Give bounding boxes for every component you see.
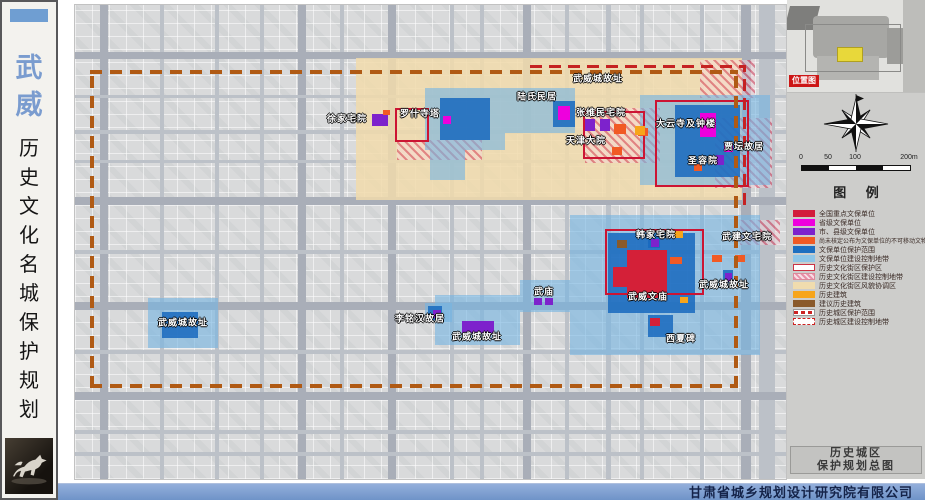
- map-label: 武威文庙: [628, 290, 668, 303]
- legend-swatch-dashfill-red: [793, 309, 815, 316]
- planning-map: 武威城故址徐家宅院罗什寺塔陆氏民居张维民宅院天津大院大云寺及钟楼贾坛故居圣容院韩…: [75, 5, 786, 479]
- road: [75, 452, 786, 456]
- boundary-edge: [90, 70, 738, 74]
- map-label: 张维民宅院: [576, 106, 626, 119]
- inset-patch: [903, 0, 925, 92]
- legend: 图 例 全国重点文保单位省级文保单位市、县级文保单位尚未核定公布为文保单位的不可…: [787, 182, 925, 326]
- map-label: 大云寺及钟楼: [656, 117, 716, 130]
- map-label: 西夏碑: [666, 332, 696, 345]
- inset-highlight-rect: [837, 47, 863, 62]
- legend-swatch-purple: [793, 228, 815, 235]
- sheet-title-line1: 历史城区: [791, 447, 921, 460]
- city-name-vertical: 武威: [2, 50, 56, 124]
- bronze-horse-logo: [5, 438, 53, 494]
- plan-sheet: 武威 历史文化名城保护规划 武威城故址徐家宅院罗什寺塔陆氏民居张维民宅院天津大院…: [0, 0, 925, 500]
- boundary-edge: [90, 70, 94, 388]
- map-label: 圣容院: [688, 154, 718, 167]
- map-label: 徐家宅院: [327, 112, 367, 125]
- map-label: 武建文宅院: [722, 230, 772, 243]
- road: [75, 392, 786, 400]
- scale-label: 100: [849, 154, 861, 161]
- legend-swatch-orange: [793, 237, 815, 244]
- plan-title-vertical: 历史文化名城保护规划: [2, 135, 56, 425]
- scale-bar: 050100200m: [787, 152, 925, 178]
- sidebar-accent-bar: [10, 9, 48, 22]
- map-label: 韩家宅院: [636, 228, 676, 241]
- legend-label: 历史城区建设控制地带: [819, 317, 889, 327]
- legend-swatch-brown: [793, 300, 815, 307]
- map-label: 武威城故址: [573, 72, 623, 85]
- legend-swatch-lightblue: [793, 255, 815, 262]
- scale-label: 200m: [900, 154, 918, 161]
- legend-swatch-crimson: [793, 210, 815, 217]
- map-label: 武庙: [534, 285, 554, 298]
- map-label: 罗什寺塔: [400, 107, 440, 120]
- map-label: 武威城故址: [699, 278, 749, 291]
- boundary-edge: [90, 384, 738, 388]
- legend-list: 全国重点文保单位省级文保单位市、县级文保单位尚未核定公布为文保单位的不可移动文物…: [787, 209, 925, 326]
- scale-bar-segments: [801, 165, 911, 171]
- road: [75, 430, 786, 434]
- protection-scope-boundary: [743, 65, 746, 205]
- map-label: 李铭汉故居: [395, 312, 445, 325]
- legend-swatch-magenta: [793, 219, 815, 226]
- institute-footer-bar: 甘肃省城乡规划设计研究院有限公司: [58, 483, 925, 500]
- institute-name: 甘肃省城乡规划设计研究院有限公司: [689, 485, 913, 500]
- scale-label: 0: [799, 154, 803, 161]
- sheet-title-box: 历史城区 保护规划总图: [790, 446, 922, 474]
- legend-swatch-hatch-pink: [793, 273, 815, 280]
- map-label: 武威城故址: [452, 330, 502, 343]
- legend-item: 历史文化街区风貌协调区: [787, 281, 925, 290]
- legend-label: 市、县级文保单位: [819, 227, 875, 237]
- north-arrow-icon: [808, 94, 904, 152]
- map-label: 武威城故址: [158, 316, 208, 329]
- horse-icon: [5, 444, 53, 488]
- map-label: 天津大院: [566, 134, 606, 147]
- location-inset-map: 位置图: [787, 0, 925, 93]
- legend-item: 历史城区建设控制地带: [787, 317, 925, 326]
- map-label: 贾坛故居: [724, 140, 764, 153]
- compass-rose: [787, 94, 925, 152]
- legend-swatch-beige: [793, 282, 815, 289]
- legend-swatch-amber: [793, 291, 815, 298]
- title-sidebar: 武威 历史文化名城保护规划: [0, 0, 58, 500]
- scale-label: 50: [824, 154, 832, 161]
- legend-swatch-blue: [793, 246, 815, 253]
- legend-item: 市、县级文保单位: [787, 227, 925, 236]
- location-map-label: 位置图: [789, 75, 819, 87]
- legend-panel: 位置图 050100200m 图 例 全: [787, 0, 925, 479]
- legend-title: 图 例: [787, 182, 925, 201]
- legend-swatch-dash-red: [793, 318, 815, 325]
- sheet-title-line2: 保护规划总图: [791, 460, 921, 473]
- map-label: 陆氏民居: [517, 90, 557, 103]
- legend-swatch-outline-red: [793, 264, 815, 271]
- protection-scope-boundary: [530, 65, 745, 68]
